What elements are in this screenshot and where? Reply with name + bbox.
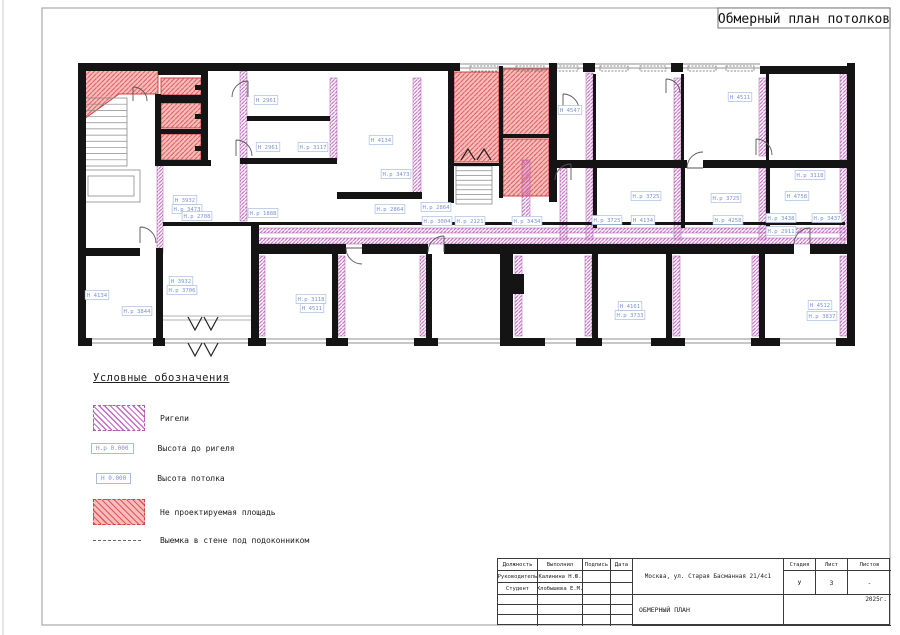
wall: [195, 85, 202, 90]
wall: [163, 222, 255, 226]
beam-hatch: [586, 73, 593, 160]
wall: [153, 338, 165, 346]
wall: [195, 146, 202, 151]
wall: [78, 338, 92, 346]
height-label: Н.р 3437: [814, 216, 841, 222]
beam-height-sample: Н.р 0.000: [91, 443, 134, 454]
height-label: Н.р 3118: [797, 173, 825, 179]
beam-hatch: [157, 165, 163, 253]
stair-direction-mark: [188, 317, 202, 330]
legend-label: Высота до ригеля: [158, 444, 235, 453]
height-label: Н.р 3844: [124, 309, 152, 315]
beam-hatch: [522, 160, 530, 222]
wall: [766, 74, 769, 160]
cell-empty: [583, 595, 611, 605]
wall: [337, 192, 422, 199]
wall: [158, 66, 207, 75]
th-date: Дата: [611, 559, 633, 571]
beam-hatch: [759, 78, 766, 156]
door-swing: [687, 152, 703, 168]
height-label: Н.р 4258: [715, 218, 743, 224]
wall: [78, 63, 86, 346]
wall: [155, 94, 161, 166]
cell-empty: [498, 595, 538, 605]
height-label: Н.р 1888: [250, 211, 278, 217]
wall: [500, 254, 513, 338]
sheet-title: Обмерный план потолков: [718, 12, 890, 27]
beam-hatch: [585, 256, 592, 336]
wall: [703, 160, 847, 168]
beam-hatch: [338, 256, 345, 336]
height-label: Н 4511: [730, 95, 750, 101]
beam-hatch: [240, 71, 247, 221]
legend-item-ceiling-height: Н 0.000 Высота потолка: [96, 473, 225, 484]
cell-empty: [538, 595, 583, 605]
th-signature: Подпись: [583, 559, 611, 571]
beam-hatch: [330, 78, 337, 160]
stair-direction-mark: [204, 343, 218, 356]
beam-hatch-swatch: [93, 405, 145, 431]
wall: [503, 134, 549, 138]
cell-empty: [498, 615, 538, 626]
legend-item-not-designed: Не проектируемая площадь: [93, 499, 276, 525]
stair-direction-mark: [204, 317, 218, 330]
drawing-sheet: { "page": { "title": "Обмерный план пото…: [0, 0, 900, 635]
legend-label: Высота потолка: [157, 474, 224, 483]
cell-empty: [611, 605, 633, 615]
height-label: Н.р 2864: [423, 205, 451, 211]
doc-title: ОБМЕРНЫЙ ПЛАН: [633, 595, 784, 626]
sheets-value: -: [848, 571, 891, 595]
wall: [500, 338, 545, 346]
th-position: Должность: [498, 559, 538, 571]
cell-empty: [611, 615, 633, 626]
height-label: Н 4547: [560, 108, 580, 114]
wall: [414, 338, 438, 346]
wall: [557, 160, 687, 168]
role-student: Студент: [498, 583, 538, 595]
wall: [499, 66, 503, 198]
cell-empty: [611, 583, 633, 595]
legend: Условные обозначения: [93, 372, 229, 384]
th-sheet: Лист: [816, 559, 848, 571]
role-supervisor: Руководитель: [498, 571, 538, 583]
beam-hatch: [840, 73, 847, 160]
wall: [326, 338, 348, 346]
wall: [592, 254, 598, 338]
cell-empty: [538, 615, 583, 626]
cell-empty: [583, 571, 611, 583]
height-label: Н.р 3725: [633, 194, 660, 200]
height-label: Н.р 2708: [184, 214, 212, 220]
wall: [583, 63, 595, 72]
height-label: Н 4512: [810, 303, 830, 309]
stair-outline: [82, 170, 140, 202]
th-executed: Выполнил: [538, 559, 583, 571]
wall: [201, 66, 208, 166]
beam-hatch: [258, 256, 265, 336]
th-stage: Стадия: [784, 559, 816, 571]
wall: [593, 74, 596, 160]
height-label: Н.р 3725: [713, 196, 740, 202]
cell-empty: [538, 605, 583, 615]
wall: [251, 222, 259, 338]
title-block: Должность Выполнил Подпись Дата Москва, …: [497, 558, 890, 625]
wall: [78, 63, 460, 71]
height-label: Н 3932: [175, 198, 195, 204]
height-label: Н.р 3473: [383, 172, 410, 178]
wall: [362, 244, 428, 254]
cell-empty: [583, 615, 611, 626]
wall: [426, 254, 432, 338]
wall: [671, 63, 683, 72]
th-sheets: Листов: [848, 559, 891, 571]
wall: [444, 244, 794, 254]
beam-hatch: [752, 256, 759, 336]
wall: [810, 244, 847, 254]
legend-item-beam-height: Н.р 0.000 Высота до ригеля: [91, 443, 235, 454]
wall: [448, 63, 454, 203]
height-label: Н 4134: [87, 293, 108, 299]
cell-empty: [611, 571, 633, 583]
wall: [155, 129, 207, 134]
height-label: Н 4134: [371, 138, 392, 144]
stage-value: У: [784, 571, 816, 595]
wall: [759, 254, 765, 338]
height-label: Н.р 3118: [298, 297, 326, 303]
sheet-value: 3: [816, 571, 848, 595]
cell-empty: [583, 605, 611, 615]
door-swing: [140, 227, 156, 243]
floor-plan: Н 2961Н 2961Н.р 3117Н 4134Н.р 3473Н 3932…: [78, 63, 855, 356]
beam-hatch: [255, 228, 845, 233]
wall: [452, 163, 500, 166]
not-designed-area: [80, 66, 158, 122]
wall: [549, 160, 557, 202]
wall: [760, 66, 855, 74]
wall: [156, 248, 163, 338]
height-label: Н.р 2121: [457, 219, 484, 225]
legend-item-wall-recess: Выемка в стене под подоконником: [93, 536, 309, 545]
height-label: Н 4511: [302, 306, 322, 312]
height-label: Н.р 3117: [300, 145, 327, 151]
stair-direction-mark: [188, 343, 202, 356]
dashed-line-swatch: [93, 540, 141, 541]
height-label: Н 4134: [633, 218, 654, 224]
not-designed-area: [454, 72, 499, 162]
wall: [78, 248, 140, 256]
wall: [576, 338, 602, 346]
height-label: Н 2961: [258, 145, 278, 151]
not-designed-area: [503, 69, 549, 135]
height-label: Н 4161: [620, 304, 640, 310]
year-label: 2025г.: [784, 595, 891, 626]
height-label: Н 3932: [171, 279, 191, 285]
wall: [651, 338, 685, 346]
height-label: Н.р 3733: [617, 313, 644, 319]
beam-hatch: [515, 256, 522, 336]
wall: [248, 338, 266, 346]
wall: [681, 74, 684, 160]
wall: [240, 158, 337, 164]
legend-title: Условные обозначения: [93, 372, 229, 384]
beam-hatch: [255, 238, 845, 244]
legend-item-beams: Ригели: [93, 405, 189, 431]
height-label: Н.р 3434: [514, 219, 542, 225]
height-label: Н.р 2911: [768, 229, 795, 235]
beam-hatch: [673, 256, 680, 336]
wall: [155, 95, 207, 103]
wall: [666, 254, 672, 338]
cell-empty: [498, 605, 538, 615]
stair-outline: [88, 176, 134, 196]
ceiling-height-sample: Н 0.000: [96, 473, 131, 484]
legend-label: Ригели: [160, 414, 189, 423]
wall: [513, 274, 524, 294]
supervisor-name: Калинина Н.Ю.: [538, 571, 583, 583]
wall: [255, 244, 346, 254]
wall: [332, 254, 338, 338]
beam-hatch: [420, 256, 427, 336]
height-label: Н.р 3837: [809, 314, 836, 320]
door-swing: [346, 248, 362, 264]
height-label: Н.р 3706: [169, 288, 196, 294]
wall: [751, 338, 780, 346]
wall: [681, 168, 685, 228]
height-label: Н.р 3725: [594, 218, 621, 224]
project-address: Москва, ул. Старая Басманная 21/4с1: [633, 559, 784, 595]
height-label: Н.р 3004: [424, 219, 452, 225]
legend-label: Выемка в стене под подоконником: [160, 536, 309, 545]
beam-hatch: [840, 256, 847, 336]
height-label: Н.р 2864: [377, 207, 405, 213]
not-designed-swatch: [93, 499, 145, 525]
height-label: Н.р 3438: [768, 216, 796, 222]
height-label: Н 4758: [787, 194, 808, 200]
wall: [836, 338, 855, 346]
cell-empty: [611, 595, 633, 605]
cell-empty: [583, 583, 611, 595]
wall: [195, 114, 202, 119]
height-label: Н 2961: [256, 98, 276, 104]
student-name: Хлобышева Е.М.: [538, 583, 583, 595]
beam-hatch: [413, 78, 421, 198]
wall: [549, 63, 557, 168]
legend-label: Не проектируемая площадь: [160, 508, 276, 517]
wall: [247, 116, 330, 121]
wall: [847, 63, 855, 346]
wall: [255, 222, 845, 225]
